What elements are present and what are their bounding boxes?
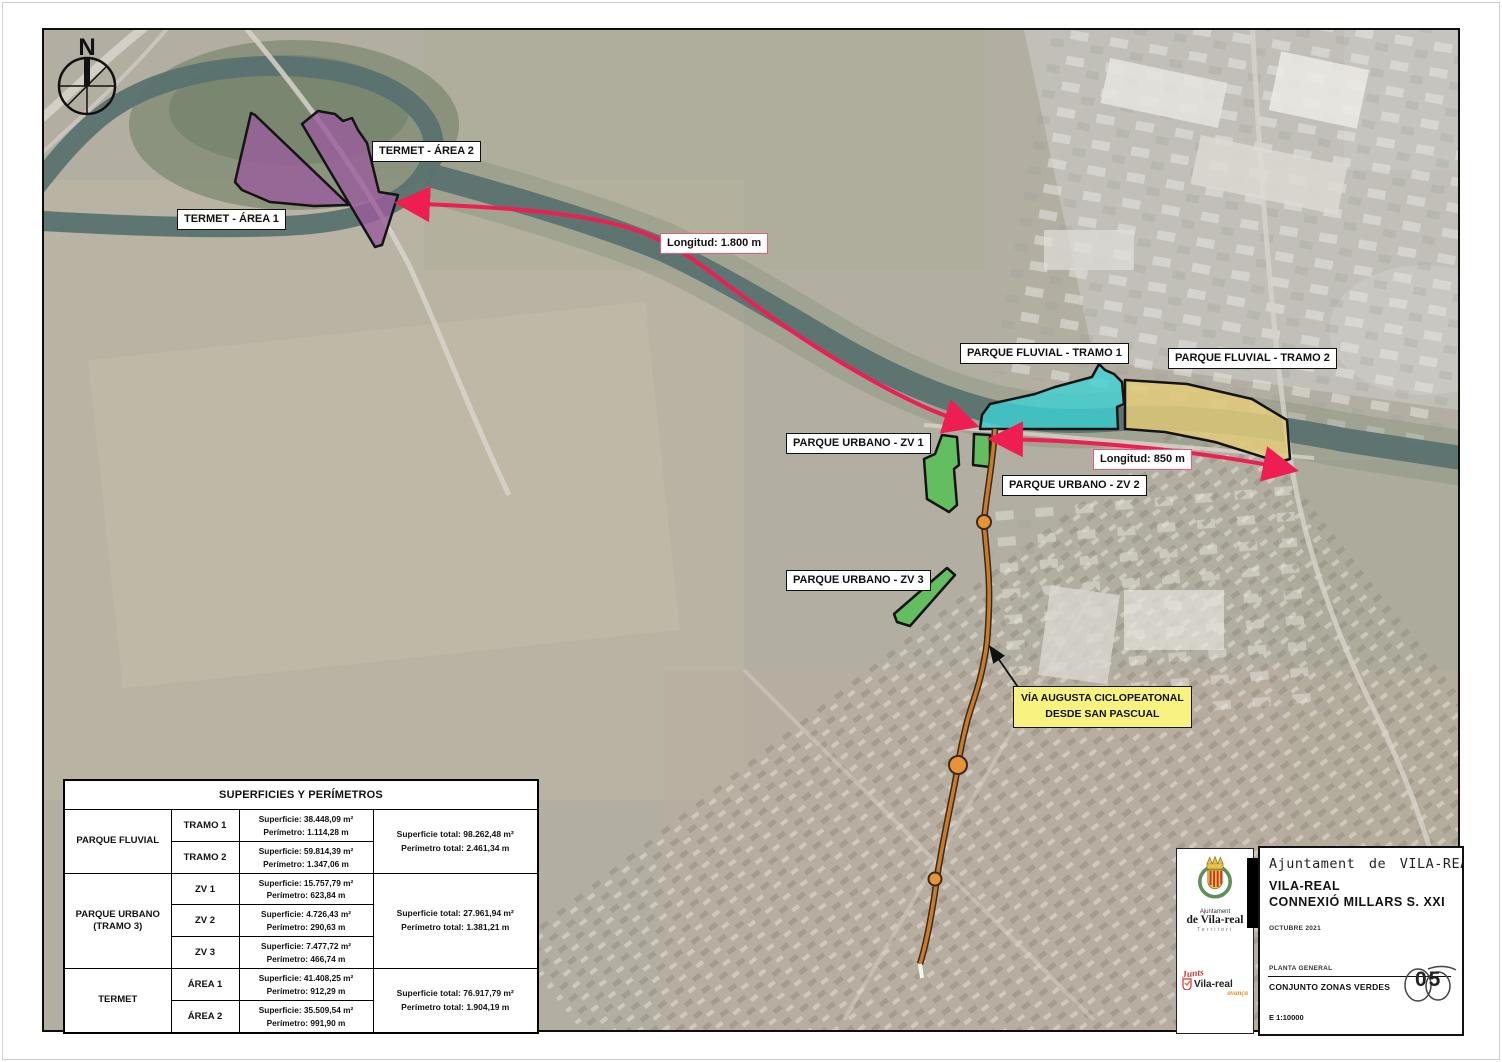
label-termet-area-1: TERMET - ÁREA 1 [177,209,286,230]
label-longitud-850: Longitud: 850 m [1093,449,1192,470]
junts-brand-text: Vila-real [1194,979,1233,990]
group-parque-urbano: PARQUE URBANO (TRAMO 3) [64,874,171,969]
parque-urbano-zv2-polygon [973,434,990,467]
group-parque-fluvial: PARQUE FLUVIAL [64,810,171,874]
logo-panel: Ajuntament de Vila-real Territori Junts … [1176,848,1254,1034]
label-parque-fluvial-tramo-2: PARQUE FLUVIAL - TRAMO 2 [1168,348,1337,369]
label-via-augusta: VÍA AUGUSTA CICLOPEATONAL DESDE SAN PASC… [1013,686,1192,728]
via-augusta-line1: VÍA AUGUSTA CICLOPEATONAL [1021,691,1184,707]
label-parque-fluvial-tramo-1: PARQUE FLUVIAL - TRAMO 1 [960,343,1129,364]
via-augusta-line2: DESDE SAN PASCUAL [1021,707,1184,723]
path-node [949,756,967,774]
title-block: Ajuntament de VILA-REAL VILA-REAL CONNEX… [1258,846,1464,1036]
junts-avanca-text: avança [1182,989,1248,997]
table-row: PARQUE FLUVIAL TRAMO 1 Superficie: 38.44… [64,810,538,842]
junts-logo: Junts Vila-real avança [1182,967,1248,997]
label-parque-urbano-zv3: PARQUE URBANO - ZV 3 [786,570,931,591]
path-node [977,515,991,529]
plan-sheet: N TERMET - ÁREA 2 TERMET - ÁREA 1 Longit… [0,0,1502,1062]
label-termet-area-2: TERMET - ÁREA 2 [372,141,481,162]
project-title-line1: VILA-REAL [1269,879,1340,893]
logo-vila-real-text: de Vila-real [1177,914,1253,926]
sheet-number: 05 [1400,960,1458,1006]
title-block-divider-bar [1247,858,1258,928]
table-title: SUPERFICIES Y PERÍMETROS [64,780,538,810]
table-row: PARQUE URBANO (TRAMO 3) ZV 1 Superficie:… [64,874,538,905]
plan-scale: E 1:10000 [1269,1013,1304,1022]
plan-date: OCTUBRE 2021 [1269,925,1321,932]
label-parque-urbano-zv1: PARQUE URBANO - ZV 1 [786,433,931,454]
north-label: N [78,34,95,61]
project-title-line2: CONNEXIÓ MILLARS S. XXI [1269,895,1445,909]
label-parque-urbano-zv2: PARQUE URBANO - ZV 2 [1002,475,1147,496]
vila-real-coat-of-arms [1193,853,1237,903]
group-termet: TERMET [64,969,171,1034]
label-longitud-1800: Longitud: 1.800 m [660,233,768,254]
logo-territori-text: Territori [1177,927,1253,933]
sheet-number-text: 05 [1415,968,1442,992]
superficies-table: SUPERFICIES Y PERÍMETROS PARQUE FLUVIAL … [63,779,539,1034]
agency-name: Ajuntament de VILA-REAL [1269,856,1464,872]
plan-type: PLANTA GENERAL [1269,965,1332,972]
path-node [929,873,942,886]
table-title-row: SUPERFICIES Y PERÍMETROS [64,780,538,810]
table-row: TERMET ÁREA 1 Superficie: 41.408,25 m² P… [64,969,538,1001]
sheet-title: CONJUNTO ZONAS VERDES [1269,982,1390,992]
